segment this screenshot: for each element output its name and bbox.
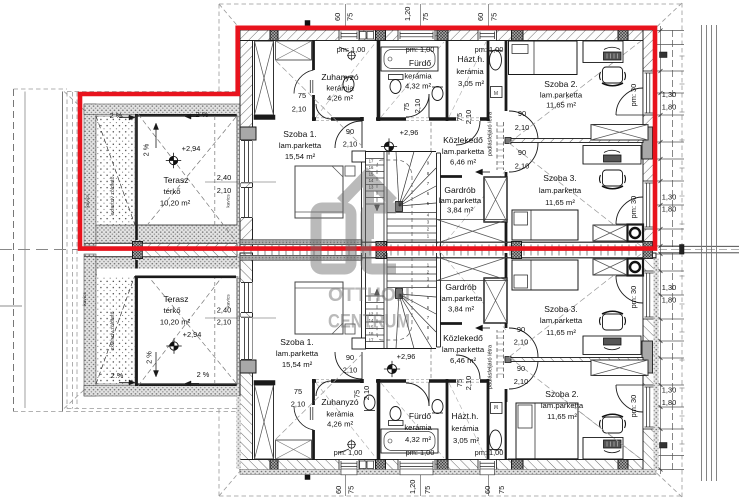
svg-text:15,54 m²: 15,54 m² (282, 360, 313, 369)
svg-text:17: 17 (369, 338, 374, 343)
svg-text:5: 5 (427, 295, 430, 300)
svg-text:6: 6 (427, 191, 430, 196)
svg-text:90: 90 (346, 353, 354, 362)
svg-text:13: 13 (369, 185, 374, 190)
svg-text:15: 15 (369, 172, 374, 177)
svg-text:2,10: 2,10 (413, 99, 422, 113)
svg-text:Fürdő: Fürdő (409, 58, 431, 68)
svg-text:6: 6 (427, 305, 430, 310)
svg-text:2,10: 2,10 (343, 140, 357, 149)
svg-text:75: 75 (298, 91, 306, 100)
svg-text:2,10: 2,10 (362, 386, 371, 400)
svg-text:90: 90 (518, 148, 526, 157)
svg-text:lam.parketta: lam.parketta (540, 316, 583, 325)
svg-text:+2,94: +2,94 (182, 144, 201, 153)
svg-text:11,65 m²: 11,65 m² (547, 412, 577, 421)
svg-text:60: 60 (333, 13, 342, 21)
svg-text:Terasz: Terasz (163, 294, 188, 304)
svg-text:lam.parketta: lam.parketta (541, 401, 584, 410)
svg-text:16: 16 (369, 165, 374, 170)
svg-text:75: 75 (455, 379, 464, 387)
svg-text:2 %: 2 % (145, 351, 154, 364)
svg-text:2 %: 2 % (197, 370, 210, 379)
svg-text:6,46 m²: 6,46 m² (450, 356, 477, 365)
svg-text:kavics: kavics (82, 292, 88, 306)
svg-text:11,65 m²: 11,65 m² (545, 198, 575, 207)
svg-text:extenzív zöldtető: extenzív zöldtető (110, 176, 116, 215)
svg-text:kavics: kavics (226, 194, 232, 208)
svg-text:75: 75 (346, 13, 355, 21)
svg-text:10,20 m²: 10,20 m² (160, 199, 191, 208)
svg-text:kavics: kavics (85, 194, 91, 208)
svg-text:90: 90 (517, 364, 525, 373)
svg-text:Közlekedő: Közlekedő (443, 333, 483, 343)
svg-text:11,65 m²: 11,65 m² (546, 328, 576, 337)
svg-text:60: 60 (334, 486, 343, 494)
svg-text:Szoba 1.: Szoba 1. (280, 337, 314, 347)
svg-text:pm: 30: pm: 30 (629, 395, 638, 418)
svg-text:OTTHON: OTTHON (328, 284, 410, 306)
svg-text:6,46 m²: 6,46 m² (450, 158, 477, 167)
svg-text:2,10: 2,10 (464, 376, 473, 390)
svg-text:75: 75 (353, 390, 362, 398)
svg-text:2 %: 2 % (142, 143, 151, 156)
svg-text:60: 60 (476, 13, 485, 21)
svg-text:térkő: térkő (163, 187, 180, 196)
svg-text:3,84 m²: 3,84 m² (448, 305, 475, 314)
svg-text:lam.parketta: lam.parketta (442, 345, 485, 354)
svg-text:14: 14 (369, 178, 374, 183)
svg-text:lam.parketta: lam.parketta (540, 91, 583, 100)
svg-text:2,10: 2,10 (217, 186, 231, 195)
svg-text:1,30: 1,30 (662, 283, 676, 292)
svg-text:+2,96: +2,96 (400, 128, 419, 137)
svg-text:4,32 m²: 4,32 m² (405, 435, 432, 444)
svg-text:1,20: 1,20 (403, 7, 412, 21)
svg-text:2 %: 2 % (196, 110, 209, 119)
svg-text:4,26 m²: 4,26 m² (327, 94, 354, 103)
svg-text:13: 13 (369, 312, 374, 317)
svg-text:2: 2 (427, 227, 430, 232)
svg-text:lam.parketta: lam.parketta (539, 186, 582, 195)
svg-text:2 %: 2 % (110, 111, 123, 120)
svg-text:1,80: 1,80 (662, 296, 676, 305)
svg-text:Zuhanyzó: Zuhanyzó (321, 72, 359, 82)
svg-text:pm: 30: pm: 30 (629, 84, 638, 107)
svg-text:+2,96: +2,96 (397, 352, 416, 361)
svg-text:lam.parketta: lam.parketta (276, 349, 319, 358)
svg-text:75: 75 (423, 486, 432, 494)
svg-text:2,10: 2,10 (514, 338, 528, 347)
svg-text:pm: 30: pm: 30 (629, 196, 638, 219)
svg-text:Gardrób: Gardrób (444, 185, 475, 195)
svg-text:75: 75 (402, 103, 411, 111)
svg-text:padlásfeljáró létra: padlásfeljáró létra (488, 111, 494, 156)
svg-text:kerámia: kerámia (404, 72, 432, 81)
svg-text:lam.parketta: lam.parketta (440, 294, 483, 303)
svg-text:75: 75 (421, 13, 430, 21)
svg-text:pm: 30: pm: 30 (629, 286, 638, 309)
svg-text:90: 90 (346, 127, 354, 136)
svg-text:2,10: 2,10 (343, 366, 357, 375)
svg-text:+2,94: +2,94 (183, 330, 202, 339)
svg-text:90: 90 (517, 325, 525, 334)
svg-text:1,30: 1,30 (662, 386, 676, 395)
svg-text:2,10: 2,10 (514, 377, 528, 386)
svg-text:Házt.h.: Házt.h. (452, 411, 479, 421)
svg-text:75: 75 (294, 387, 302, 396)
svg-text:7: 7 (427, 315, 430, 320)
svg-text:pm: 1,00: pm: 1,00 (334, 448, 363, 457)
svg-text:térkő: térkő (163, 306, 180, 315)
svg-text:Szoba 2.: Szoba 2. (545, 389, 579, 399)
svg-text:9: 9 (427, 336, 430, 341)
svg-text:7: 7 (427, 181, 430, 186)
svg-text:75: 75 (497, 486, 506, 494)
svg-text:Szoba 3.: Szoba 3. (543, 173, 577, 183)
svg-text:Gardrób: Gardrób (445, 282, 476, 292)
svg-text:75: 75 (490, 13, 499, 21)
svg-text:lam.parketta: lam.parketta (279, 141, 322, 150)
svg-text:M: M (494, 91, 498, 97)
svg-text:pm: 1,00: pm: 1,00 (475, 448, 504, 457)
svg-text:3,05 m²: 3,05 m² (458, 79, 485, 88)
svg-text:2,40: 2,40 (217, 173, 231, 182)
svg-text:1,80: 1,80 (662, 205, 676, 214)
svg-text:kavics: kavics (226, 294, 232, 308)
svg-text:2,10: 2,10 (515, 123, 529, 132)
svg-text:2 %: 2 % (111, 371, 124, 380)
svg-text:75: 75 (455, 113, 464, 121)
svg-text:2,10: 2,10 (217, 318, 231, 327)
svg-text:4: 4 (427, 213, 430, 218)
svg-text:lam.parketta: lam.parketta (439, 196, 482, 205)
svg-text:Szoba 2.: Szoba 2. (544, 79, 578, 89)
svg-text:75: 75 (347, 486, 356, 494)
svg-text:pm: 1,00: pm: 1,00 (337, 45, 366, 54)
svg-text:8: 8 (427, 325, 430, 330)
svg-text:extenzív zöldtető: extenzív zöldtető (110, 311, 116, 350)
svg-text:kerámia: kerámia (404, 423, 432, 432)
svg-text:1: 1 (427, 234, 430, 239)
svg-text:Szoba 1.: Szoba 1. (283, 129, 317, 139)
svg-text:lam.parketta: lam.parketta (442, 147, 485, 156)
svg-text:2,10: 2,10 (292, 105, 306, 114)
svg-text:3: 3 (427, 220, 430, 225)
svg-text:1,80: 1,80 (662, 398, 676, 407)
svg-text:Közlekedő: Közlekedő (443, 135, 483, 145)
svg-text:pm: 1,00: pm: 1,00 (475, 45, 504, 54)
svg-text:16: 16 (369, 331, 374, 336)
svg-text:4,26 m²: 4,26 m² (327, 420, 354, 429)
svg-text:Terasz: Terasz (163, 175, 188, 185)
svg-text:14: 14 (369, 318, 374, 323)
svg-text:11,65 m²: 11,65 m² (546, 101, 576, 110)
svg-text:4,32 m²: 4,32 m² (405, 82, 432, 91)
svg-text:kerámia: kerámia (456, 67, 484, 76)
svg-text:3,05 m²: 3,05 m² (453, 436, 480, 445)
svg-text:1,30: 1,30 (662, 193, 676, 202)
svg-text:kerámia: kerámia (326, 84, 354, 93)
svg-text:1,20: 1,20 (408, 480, 417, 494)
svg-text:1,30: 1,30 (662, 90, 676, 99)
svg-text:15,54 m²: 15,54 m² (285, 152, 316, 161)
svg-text:kerámia: kerámia (451, 424, 479, 433)
svg-text:Fürdő: Fürdő (409, 411, 431, 421)
svg-text:3,84 m²: 3,84 m² (447, 206, 474, 215)
svg-text:90: 90 (518, 109, 526, 118)
svg-text:2,10: 2,10 (291, 400, 305, 409)
svg-text:2,10: 2,10 (515, 162, 529, 171)
svg-text:Szoba 3.: Szoba 3. (544, 304, 578, 314)
svg-text:2,10: 2,10 (464, 110, 473, 124)
svg-text:pm: 1,00: pm: 1,00 (406, 45, 435, 54)
svg-text:Házt.h.: Házt.h. (458, 54, 485, 64)
svg-text:17: 17 (369, 159, 374, 164)
svg-text:15: 15 (369, 325, 374, 330)
svg-text:9: 9 (427, 161, 430, 166)
svg-text:pm: 1,00: pm: 1,00 (406, 448, 435, 457)
svg-text:10,20 m²: 10,20 m² (160, 318, 191, 327)
svg-text:padlásfeljáró létra: padlásfeljáró létra (488, 344, 494, 389)
svg-text:kerámia: kerámia (326, 410, 354, 419)
svg-text:60: 60 (483, 486, 492, 494)
svg-text:1,80: 1,80 (662, 103, 676, 112)
